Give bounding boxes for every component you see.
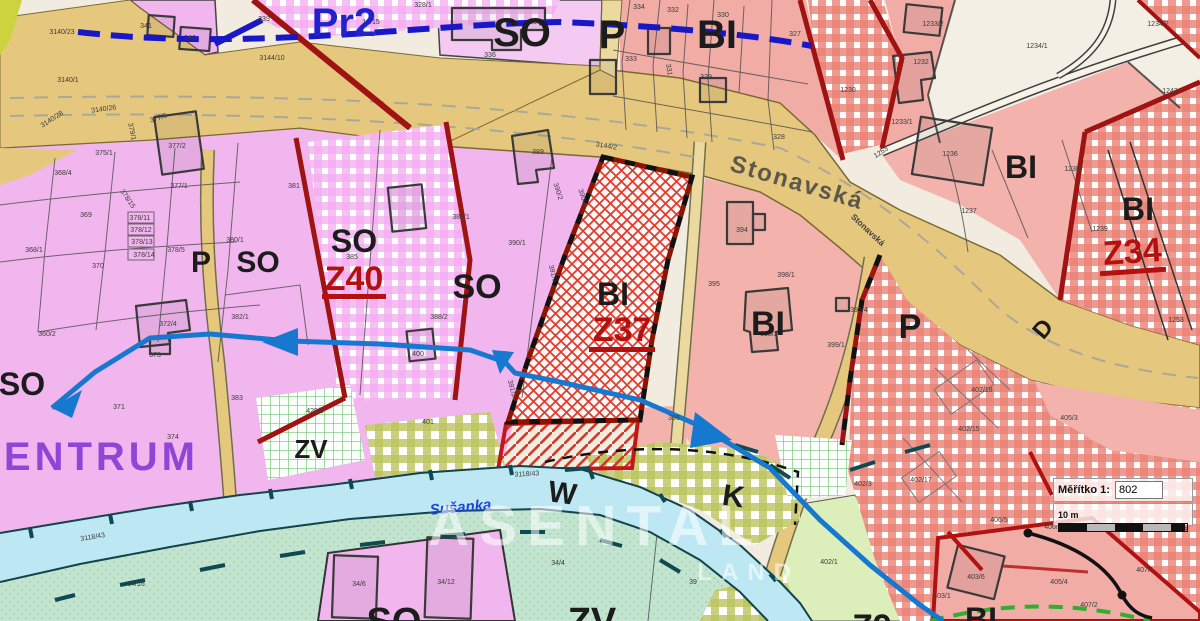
zone-label: SO [0, 366, 45, 402]
parcel-number-label: 333 [625, 56, 637, 63]
zone-label: BI [1122, 191, 1154, 227]
parcel-number-label: 377/1 [170, 183, 188, 190]
parcel-number-label: 378/5 [167, 247, 185, 254]
zone-code-label: Z34 [1102, 231, 1163, 273]
parcel-number-label: 328 [773, 134, 785, 141]
zone-label: ZV [568, 601, 617, 621]
parcel-number-label: 341 [140, 23, 152, 30]
zone-label: W [546, 475, 579, 512]
parcel-number-label: 329 [700, 74, 712, 81]
parcel-number-label: 403/1 [933, 593, 951, 600]
parcel-number-label: 1232 [913, 59, 929, 66]
zone-label: SO [493, 11, 551, 55]
parcel-number-label: 1234/1 [1026, 43, 1048, 50]
parcel-number-label: 380/1 [226, 237, 244, 244]
zone-label: CENTRUM [0, 435, 199, 479]
scalebar-label: 10 m [1058, 510, 1079, 520]
parcel-number-label: 372/4 [159, 321, 177, 328]
parcel-number-label: 39 [689, 579, 697, 586]
scalebar [1058, 523, 1188, 532]
parcel-number-label: 399/1 [827, 342, 845, 349]
parcel-number-label: 327 [789, 31, 801, 38]
parcel-number-label: 1253 [1168, 317, 1184, 324]
parcel-number-label: 1233/2 [922, 21, 944, 28]
zone-label: Pr2 [312, 1, 377, 45]
parcel-number-label: 368/4 [54, 170, 72, 177]
parcel-number-label: 3144/10 [259, 55, 284, 62]
parcel-number-label: 34/12 [437, 579, 455, 586]
parcel-number-label: 420/9 [306, 408, 324, 415]
parcel-number-label: 1233/1 [891, 119, 913, 126]
parcel-number-label: 340 [184, 35, 196, 42]
parcel-number-label: 328/1 [414, 2, 432, 9]
scale-label: Měřítko 1: [1058, 484, 1110, 496]
parcel-number-label: 381 [288, 183, 300, 190]
parcel-number-label: 388/1 [452, 214, 470, 221]
zone-label: SO [236, 246, 279, 279]
parcel-number-label: 34/4 [551, 560, 565, 567]
parcel-number-label: 378/13 [131, 239, 153, 246]
zone-label: P [899, 308, 922, 346]
zone-label: BI [751, 305, 785, 343]
parcel-number-label: 34/6 [352, 581, 366, 588]
zone-label: Z9 [852, 608, 892, 621]
zoning-map-canvas[interactable]: 3140/23341340339328/118/153144/103140/13… [0, 0, 1200, 621]
zone-label: BI [697, 13, 737, 57]
parcel-number-label: 405/4 [1050, 579, 1068, 586]
zone-code-label: Z37 [593, 311, 652, 349]
parcel-number-label: 332 [667, 7, 679, 14]
zone-label: P [191, 246, 211, 279]
parcel-number-label: 390/1 [508, 240, 526, 247]
parcel-number-label: 339 [258, 16, 270, 23]
parcel-number-label: 1230 [840, 87, 856, 94]
parcel-number-label: 398/1 [777, 272, 795, 279]
parcel-number-label: 370 [92, 263, 104, 270]
parcel-number-label: 383 [231, 395, 243, 402]
parcel-number-label: 375/1 [95, 150, 113, 157]
parcel-number-label: 388/2 [430, 314, 448, 321]
parcel-number-label: 389 [532, 149, 544, 156]
parcel-number-label: 3118/43 [514, 470, 539, 478]
parcel-number-label: 373 [149, 352, 161, 359]
parcel-number-label: 3140/23 [49, 29, 74, 36]
parcel-number-label: 378/11 [130, 215, 151, 222]
parcel-number-label: 378/14 [133, 252, 155, 259]
parcel-number-label: 407/2 [1080, 602, 1098, 609]
parcel-number-label: 402/1 [820, 559, 838, 566]
zone-label: BI [965, 601, 997, 621]
zone-code-label: Z40 [325, 260, 384, 298]
map-viewport[interactable]: 3140/23341340339328/118/153144/103140/13… [0, 0, 1200, 621]
parcel-number-label: 402/17 [910, 477, 932, 484]
parcel-number-label: 402/18 [971, 387, 993, 394]
parcel-number-label: 1238 [1064, 166, 1080, 173]
scale-box: Měřítko 1: [1053, 478, 1193, 502]
parcel-number-label: 402/3 [854, 481, 872, 488]
parcel-number-label: 1239 [1092, 226, 1108, 233]
zone-label: ZV [294, 434, 328, 464]
scale-input[interactable] [1115, 481, 1163, 499]
parcel-number-label: 3140/1 [57, 77, 79, 84]
zone-label: SO [331, 223, 377, 259]
scalebar-box: 10 m [1053, 503, 1193, 526]
parcel-number-label: 334 [633, 4, 645, 11]
parcel-number-label: 407/1 [1136, 567, 1154, 574]
parcel-number-label: 371 [113, 404, 125, 411]
parcel-number-label: 400 [412, 351, 424, 358]
zone-label: P [599, 13, 626, 57]
parcel-number-label: 395 [708, 281, 720, 288]
parcel-number-label: 394 [736, 227, 748, 234]
parcel-number-label: 396 [668, 415, 680, 422]
parcel-number-label: 406/5 [990, 517, 1008, 524]
zone-label: SO [452, 268, 501, 306]
zone-label: SO [367, 601, 422, 621]
parcel-number-label: 34/16 [127, 581, 145, 588]
parcel-number-label: 402/15 [958, 426, 980, 433]
parcel-number-label: 1242 [1162, 88, 1178, 95]
zone-label: BI [1005, 149, 1037, 185]
parcel-number-label: 368/1 [25, 247, 43, 254]
parcel-number-label: 403/6 [967, 574, 985, 581]
parcel-number-label: 1237 [961, 208, 977, 215]
parcel-number-label: 377/2 [168, 143, 186, 150]
parcel-number-label: 1236 [942, 151, 958, 158]
parcel-number-label: 360/2 [38, 331, 56, 338]
zone-z37-south [498, 420, 638, 470]
parcel-number-label: 378/12 [130, 227, 152, 234]
parcel-number-label: 405/3 [1060, 415, 1078, 422]
zone-label: BI [597, 276, 629, 312]
parcel-number-label: 401 [422, 419, 434, 426]
parcel-number-label: 369 [80, 212, 92, 219]
parcel-number-label: 399/4 [850, 307, 868, 314]
parcel-number-label: 382/1 [231, 314, 249, 321]
parcel-number-label: 1234/2 [1147, 21, 1169, 28]
